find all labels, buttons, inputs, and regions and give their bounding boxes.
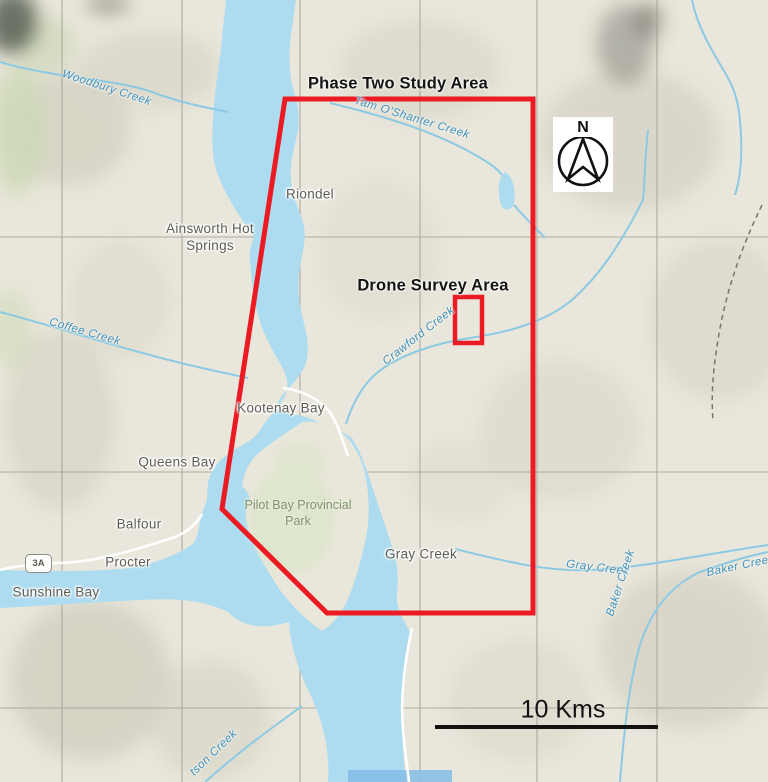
- place-label-gray-creek: Gray Creek: [385, 547, 457, 562]
- highway-3a-shield: 3A: [25, 554, 52, 573]
- scale-bar-label: 10 Kms: [521, 696, 606, 725]
- place-label-sunshine-bay: Sunshine Bay: [13, 585, 100, 600]
- place-label-procter: Procter: [105, 555, 151, 570]
- map-canvas[interactable]: Phase Two Study Area Drone Survey Area R…: [0, 0, 768, 782]
- place-label-pilot-bay-provincial-park: Pilot Bay Provincial Park: [238, 497, 358, 530]
- place-label-riondel: Riondel: [286, 187, 334, 202]
- place-label-balfour: Balfour: [117, 517, 162, 532]
- compass-needle-icon: [568, 139, 598, 179]
- place-label-kootenay-bay: Kootenay Bay: [237, 401, 325, 416]
- north-arrow: N: [553, 117, 613, 192]
- park-area-north: [275, 444, 325, 480]
- drone-survey-area-label: Drone Survey Area: [357, 277, 508, 296]
- place-label-queens-bay: Queens Bay: [138, 455, 215, 470]
- deep-water-tint: [348, 770, 452, 782]
- scale-bar-line: [435, 725, 658, 729]
- compass-north-letter: N: [574, 119, 592, 137]
- phase-two-study-area-label: Phase Two Study Area: [308, 75, 488, 94]
- basemap-graphics: [0, 0, 768, 782]
- place-label-ainsworth-hot-springs: Ainsworth Hot Springs: [154, 221, 266, 255]
